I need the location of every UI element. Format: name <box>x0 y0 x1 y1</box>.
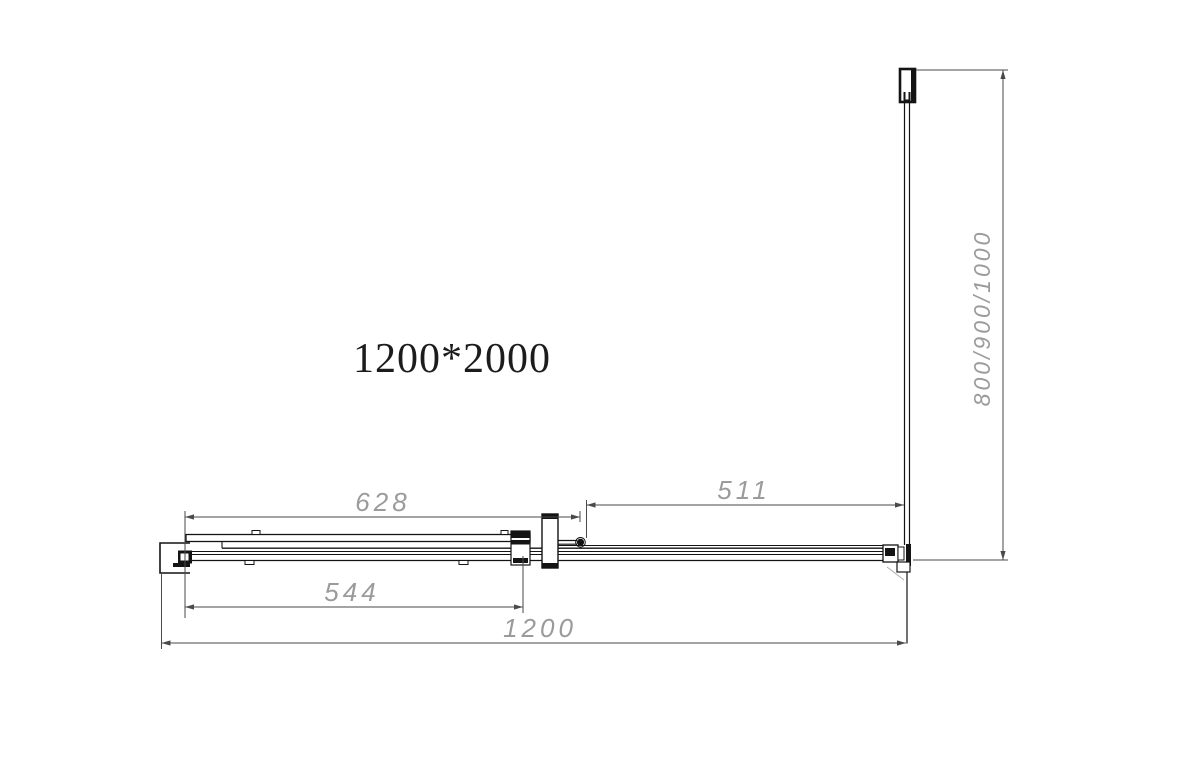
dim-1200-arrow-right <box>897 640 906 645</box>
rail-tab-right <box>501 531 508 535</box>
dim-511-arrow-left <box>587 502 596 507</box>
dim-544: 544 <box>185 556 523 613</box>
drawing-canvas: 1200*2000 <box>0 0 1195 783</box>
wall-bracket-right-foot <box>897 562 910 572</box>
dim-1200: 1200 <box>162 574 907 649</box>
wall-bracket-top-right-wall <box>911 69 915 102</box>
door-stile-body <box>542 514 558 568</box>
wall-bracket-right-spacer <box>898 547 904 560</box>
bottom-guide-left <box>245 561 254 565</box>
dim-544-arrow-right <box>514 604 523 609</box>
dim-628-arrow-right <box>571 514 580 519</box>
door-stile-profile <box>542 514 558 568</box>
dim-side-arrow-top <box>1000 70 1005 79</box>
dim-side-arrow-bottom <box>1000 551 1005 560</box>
dim-628-arrow-left <box>185 514 194 519</box>
wall-profile-left-foot <box>173 563 190 567</box>
wall-bracket-right-clamp <box>885 548 895 556</box>
dim-1200-label: 1200 <box>503 613 577 643</box>
technical-drawing: 1200*2000 <box>0 0 1195 783</box>
roller-carriage-band-3 <box>513 558 528 563</box>
dim-511-label: 511 <box>717 475 770 505</box>
dim-1200-arrow-left <box>162 640 171 645</box>
roller-carriage-band-2 <box>511 540 530 545</box>
dim-side-label: 800/900/1000 <box>969 230 995 407</box>
wall-profile-left <box>160 543 192 573</box>
dim-544-arrow-left <box>185 604 194 609</box>
top-view-assembly <box>160 514 911 580</box>
door-stile-cap-bottom <box>542 563 558 568</box>
dim-side-depth: 800/900/1000 <box>913 70 1008 560</box>
roller-carriage <box>511 531 530 565</box>
rail-tab-left <box>252 531 260 535</box>
top-rail <box>186 535 530 542</box>
bottom-guide-right <box>459 561 468 565</box>
roller-carriage-band-1 <box>511 531 530 538</box>
dim-511: 511 <box>587 475 905 538</box>
wall-bracket-top <box>900 69 915 102</box>
wall-bracket-top-slot <box>905 92 910 101</box>
dim-544-label: 544 <box>324 577 379 607</box>
product-size-label: 1200*2000 <box>353 336 551 382</box>
dim-511-arrow-right <box>895 502 904 507</box>
dim-628-label: 628 <box>355 487 410 517</box>
handle-knob <box>577 539 584 546</box>
